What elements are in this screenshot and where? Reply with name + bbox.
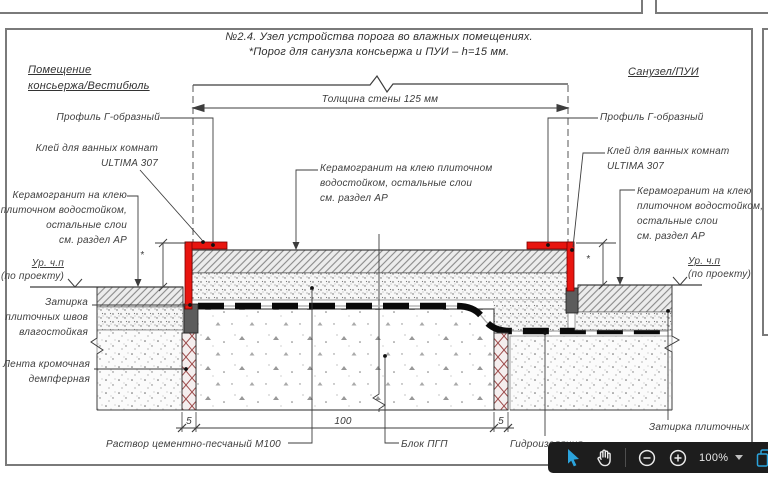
wall-top-edge xyxy=(193,76,568,92)
right-mortar-layer xyxy=(575,312,672,330)
zoom-in-icon xyxy=(669,449,687,467)
hand-icon xyxy=(595,448,613,467)
label-mortar-m100: Раствор цементно-песчаный М100 xyxy=(106,437,281,452)
left-mortar-layer xyxy=(97,307,183,330)
pan-hand-button[interactable] xyxy=(594,447,614,469)
label-glue-right: Клей для ванных комнат ULTIMA 307 xyxy=(607,144,729,174)
viewer-toolbar: 100% xyxy=(548,442,768,473)
copy-pages-button[interactable] xyxy=(754,447,768,469)
dim-star-left: * xyxy=(140,248,144,263)
anchor-right xyxy=(566,288,578,313)
select-cursor-button[interactable] xyxy=(563,447,583,469)
damping-tape-right xyxy=(494,333,508,410)
drawing-title: №2.4. Узел устройства порога во влажных … xyxy=(0,30,758,60)
label-damping-tape: Лента кромочная демпферная xyxy=(3,357,90,387)
label-ceramic-left: Керамогранит на клею плиточном водостойк… xyxy=(1,188,127,248)
label-grout-right: Затирка плиточных xyxy=(649,420,750,435)
cursor-icon xyxy=(565,448,582,467)
right-tile-layer xyxy=(578,285,672,312)
dim-wall-thickness: Толщина стены 125 мм xyxy=(280,92,480,107)
level-mark-right xyxy=(673,277,687,285)
top-left-frame-partial xyxy=(0,0,642,13)
dim-5-left: 5 xyxy=(174,414,204,429)
label-profile-left: Профиль Г-образный xyxy=(57,110,161,125)
drawing-title-line1: №2.4. Узел устройства порога во влажных … xyxy=(0,30,758,45)
left-tile-layer xyxy=(97,287,183,307)
label-level-left: Ур. ч.п (по проекту) xyxy=(1,257,64,283)
left-screed-layer xyxy=(97,330,183,410)
viewer-page: №2.4. Узел устройства порога во влажных … xyxy=(0,0,768,484)
dim-100: 100 xyxy=(320,414,366,429)
label-profile-right: Профиль Г-образный xyxy=(600,110,704,125)
copy-pages-icon xyxy=(755,448,768,467)
zoom-level-value: 100% xyxy=(699,452,728,464)
right-frame-partial xyxy=(763,29,768,335)
right-screed-layer xyxy=(510,336,672,410)
zoom-in-button[interactable] xyxy=(668,447,688,469)
label-level-right: Ур. ч.п (по проекту) xyxy=(688,255,751,281)
pgp-block xyxy=(196,309,494,410)
top-right-frame-partial xyxy=(656,0,768,13)
label-ceramic-right: Керамогранит на клею плиточном водостойк… xyxy=(637,184,763,244)
zoom-out-icon xyxy=(638,449,656,467)
room-label-left: Помещение консьержа/Вестибюль xyxy=(28,62,150,94)
toolbar-divider xyxy=(625,448,626,467)
label-glue-left: Клей для ванных комнат ULTIMA 307 xyxy=(36,141,158,171)
threshold-mortar-layer xyxy=(192,273,568,300)
damping-tape-left xyxy=(182,333,196,410)
label-ceramic-center: Керамогранит на клею плиточном водостойк… xyxy=(320,161,492,206)
zoom-level-dropdown[interactable]: 100% xyxy=(699,452,743,464)
zoom-out-button[interactable] xyxy=(637,447,657,469)
level-mark-left xyxy=(68,279,82,287)
chevron-down-icon xyxy=(735,455,743,460)
threshold-tile-layer xyxy=(192,250,568,273)
label-pgp-block: Блок ПГП xyxy=(401,437,448,452)
room-label-right: Санузел/ПУИ xyxy=(628,64,699,80)
threshold-mortar-step xyxy=(493,300,568,332)
drawing-title-line2: *Порог для санузла консьержа и ПУИ – h=1… xyxy=(0,45,758,60)
label-grout-left: Затирка плиточных швов влагостойкая xyxy=(5,295,88,340)
dim-star-right: * xyxy=(586,252,590,267)
dim-5-right: 5 xyxy=(486,414,516,429)
